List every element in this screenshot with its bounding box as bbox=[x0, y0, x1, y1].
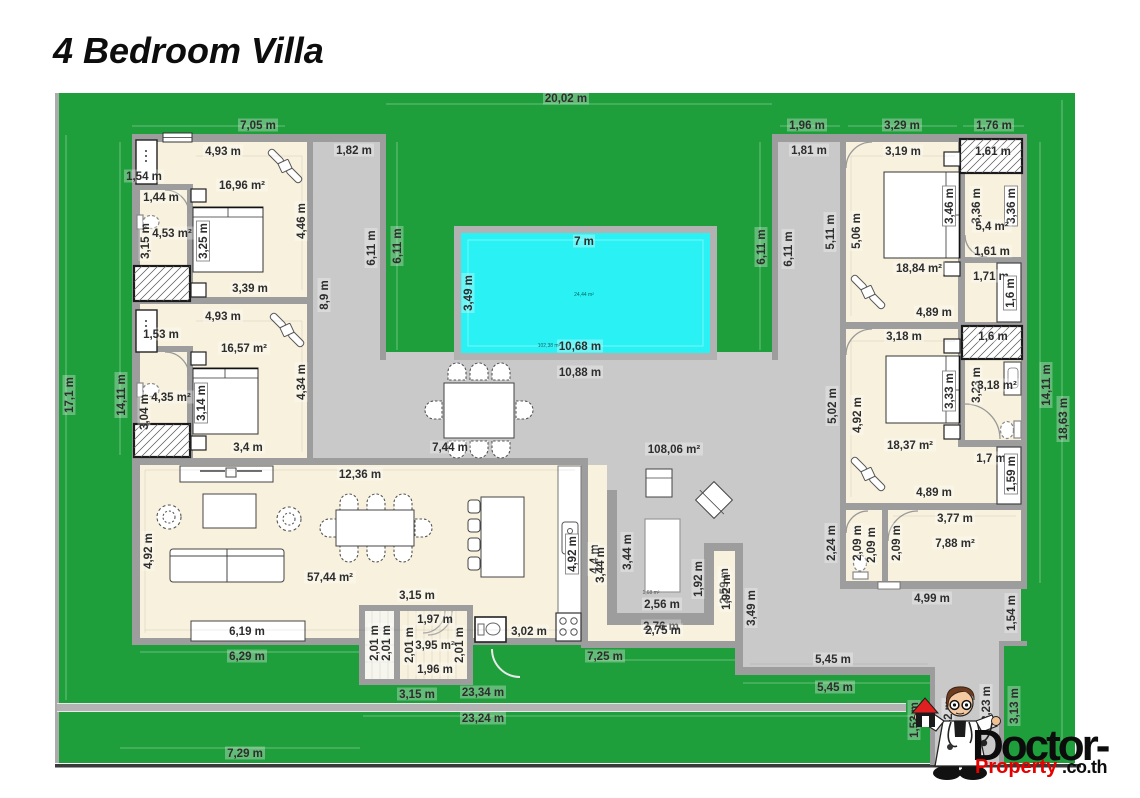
svg-text:3,25 m: 3,25 m bbox=[198, 223, 210, 259]
svg-text:2,56 m: 2,56 m bbox=[644, 599, 680, 611]
svg-text:1,92 m: 1,92 m bbox=[721, 574, 733, 610]
svg-text:5,4 m²: 5,4 m² bbox=[975, 221, 1008, 233]
svg-text:3,39 m: 3,39 m bbox=[232, 283, 268, 295]
svg-text:3,13 m: 3,13 m bbox=[1009, 688, 1021, 724]
svg-text:6,11 m: 6,11 m bbox=[366, 230, 378, 265]
svg-text:4,92 m: 4,92 m bbox=[852, 397, 864, 433]
svg-text:1,7 m: 1,7 m bbox=[976, 453, 1005, 465]
svg-text:3,46 m: 3,46 m bbox=[944, 188, 956, 224]
svg-text:3,33 m: 3,33 m bbox=[944, 373, 956, 409]
svg-text:3,02 m: 3,02 m bbox=[511, 626, 547, 638]
svg-text:3,4 m: 3,4 m bbox=[233, 442, 262, 454]
svg-text:12,36 m: 12,36 m bbox=[339, 469, 381, 481]
svg-text:3,49 m: 3,49 m bbox=[463, 275, 475, 311]
svg-text:1,6 m: 1,6 m bbox=[1005, 278, 1017, 307]
svg-text:2,75 m: 2,75 m bbox=[645, 625, 681, 637]
svg-text:6,11 m: 6,11 m bbox=[756, 229, 768, 264]
svg-text:1,44 m: 1,44 m bbox=[143, 192, 179, 204]
svg-text:4,99 m: 4,99 m bbox=[914, 593, 950, 605]
svg-text:2,01 m: 2,01 m bbox=[404, 627, 416, 663]
svg-text:2,01 m: 2,01 m bbox=[381, 625, 393, 661]
svg-text:3,44 m: 3,44 m bbox=[595, 547, 607, 583]
svg-text:4,34 m: 4,34 m bbox=[296, 364, 308, 400]
svg-text:1,96 m: 1,96 m bbox=[417, 664, 453, 676]
svg-text:7,44 m: 7,44 m bbox=[432, 442, 468, 454]
svg-text:20,02 m: 20,02 m bbox=[545, 93, 587, 105]
svg-text:2,01 m: 2,01 m bbox=[454, 627, 466, 663]
svg-text:1,59 m: 1,59 m bbox=[1006, 456, 1018, 492]
svg-text:24,44 m²: 24,44 m² bbox=[574, 292, 594, 298]
svg-text:102,38 m²: 102,38 m² bbox=[538, 343, 561, 349]
svg-text:3,77 m: 3,77 m bbox=[937, 513, 973, 525]
svg-text:57,44 m²: 57,44 m² bbox=[307, 572, 353, 584]
svg-text:Property: Property bbox=[975, 756, 1058, 778]
svg-text:3,95 m²: 3,95 m² bbox=[415, 640, 455, 652]
svg-text:1,82 m: 1,82 m bbox=[336, 145, 372, 157]
svg-text:.co.th: .co.th bbox=[1062, 757, 1107, 777]
svg-text:4 Bedroom Villa: 4 Bedroom Villa bbox=[52, 30, 324, 71]
svg-text:16,96 m²: 16,96 m² bbox=[219, 180, 265, 192]
svg-text:14,11 m: 14,11 m bbox=[116, 374, 128, 416]
svg-text:3,14 m: 3,14 m bbox=[196, 385, 208, 421]
svg-text:1,97 m: 1,97 m bbox=[417, 614, 453, 626]
svg-text:4,53 m²: 4,53 m² bbox=[152, 228, 192, 240]
svg-text:18,37 m²: 18,37 m² bbox=[887, 440, 933, 452]
svg-text:17,1 m: 17,1 m bbox=[64, 377, 76, 413]
svg-text:3,36 m: 3,36 m bbox=[1006, 188, 1018, 224]
svg-text:10,88 m: 10,88 m bbox=[559, 367, 601, 379]
svg-text:4,89 m: 4,89 m bbox=[916, 307, 952, 319]
svg-text:10,68 m: 10,68 m bbox=[559, 341, 601, 353]
svg-text:4,89 m: 4,89 m bbox=[916, 487, 952, 499]
svg-text:3,49 m: 3,49 m bbox=[746, 590, 758, 626]
svg-text:3,19 m: 3,19 m bbox=[885, 146, 921, 158]
svg-text:5,02 m: 5,02 m bbox=[827, 388, 839, 424]
svg-text:6,19 m: 6,19 m bbox=[229, 626, 265, 638]
svg-text:1,81 m: 1,81 m bbox=[791, 145, 827, 157]
svg-text:3,18 m²: 3,18 m² bbox=[977, 380, 1017, 392]
svg-text:4,92 m: 4,92 m bbox=[143, 533, 155, 569]
svg-text:6,29 m: 6,29 m bbox=[229, 651, 265, 663]
svg-text:14,11 m: 14,11 m bbox=[1041, 364, 1053, 406]
svg-text:4,93 m: 4,93 m bbox=[205, 311, 241, 323]
svg-text:3,44 m: 3,44 m bbox=[622, 534, 634, 570]
svg-text:23,24 m: 23,24 m bbox=[462, 713, 504, 725]
svg-text:1,92 m: 1,92 m bbox=[693, 561, 705, 597]
svg-text:4,35 m²: 4,35 m² bbox=[151, 392, 191, 404]
svg-text:4,92 m: 4,92 m bbox=[567, 536, 579, 572]
svg-text:1,68 m²: 1,68 m² bbox=[643, 590, 660, 596]
svg-text:2,09 m: 2,09 m bbox=[891, 525, 903, 561]
svg-text:5,45 m: 5,45 m bbox=[817, 682, 853, 694]
svg-text:3,15 m: 3,15 m bbox=[140, 223, 152, 259]
svg-text:7 m: 7 m bbox=[574, 236, 594, 248]
svg-text:3,29 m: 3,29 m bbox=[884, 120, 920, 132]
svg-text:23,34 m: 23,34 m bbox=[462, 687, 504, 699]
svg-text:2,09 m: 2,09 m bbox=[866, 527, 878, 563]
svg-text:108,06 m²: 108,06 m² bbox=[648, 444, 701, 456]
svg-text:1,96 m: 1,96 m bbox=[789, 120, 825, 132]
svg-text:3,18 m: 3,18 m bbox=[886, 331, 922, 343]
svg-text:1,54 m: 1,54 m bbox=[126, 171, 162, 183]
svg-text:1,53 m: 1,53 m bbox=[143, 329, 179, 341]
svg-text:6,11 m: 6,11 m bbox=[392, 228, 404, 263]
svg-text:5,11 m: 5,11 m bbox=[825, 214, 837, 249]
svg-text:18,84 m²: 18,84 m² bbox=[896, 263, 942, 275]
svg-text:7,05 m: 7,05 m bbox=[240, 120, 276, 132]
svg-text:16,57 m²: 16,57 m² bbox=[221, 343, 267, 355]
svg-text:18,63 m: 18,63 m bbox=[1058, 398, 1070, 440]
svg-text:8,9 m: 8,9 m bbox=[319, 280, 331, 309]
svg-text:4,46 m: 4,46 m bbox=[296, 203, 308, 239]
svg-text:1,61 m: 1,61 m bbox=[975, 146, 1011, 158]
svg-text:2,09 m: 2,09 m bbox=[852, 525, 864, 561]
svg-text:4,93 m: 4,93 m bbox=[205, 146, 241, 158]
svg-text:3,36 m: 3,36 m bbox=[971, 188, 983, 224]
svg-text:6,11 m: 6,11 m bbox=[783, 231, 795, 266]
svg-text:3,04 m: 3,04 m bbox=[139, 394, 151, 430]
svg-text:1,54 m: 1,54 m bbox=[1006, 595, 1018, 631]
svg-text:5,45 m: 5,45 m bbox=[815, 654, 851, 666]
svg-text:7,29 m: 7,29 m bbox=[227, 748, 263, 760]
svg-text:2,24 m: 2,24 m bbox=[826, 525, 838, 561]
svg-text:3,15 m: 3,15 m bbox=[399, 689, 435, 701]
svg-text:3,15 m: 3,15 m bbox=[399, 590, 435, 602]
svg-text:7,88 m²: 7,88 m² bbox=[935, 538, 975, 550]
svg-text:7,25 m: 7,25 m bbox=[587, 651, 623, 663]
svg-text:1,61 m: 1,61 m bbox=[974, 246, 1010, 258]
svg-text:5,06 m: 5,06 m bbox=[851, 213, 863, 249]
svg-text:2,01 m: 2,01 m bbox=[369, 625, 381, 661]
svg-text:1,76 m: 1,76 m bbox=[976, 120, 1012, 132]
svg-text:1,6 m: 1,6 m bbox=[978, 331, 1007, 343]
